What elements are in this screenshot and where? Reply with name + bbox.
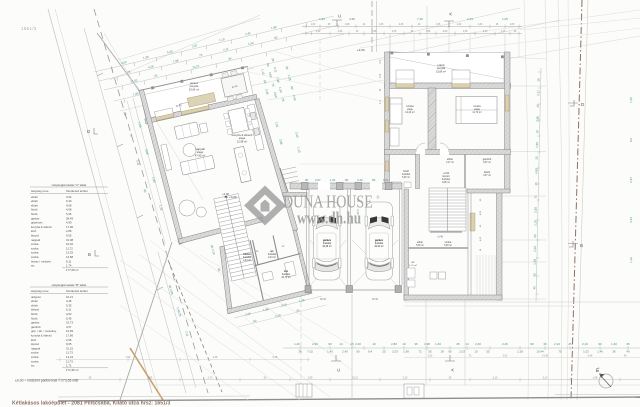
- svg-text:előtér: előtér: [447, 158, 453, 161]
- svg-text:4,48: 4,48: [213, 356, 218, 359]
- svg-text:1,25: 1,25: [436, 24, 441, 26]
- svg-text:kamra: kamra: [243, 253, 251, 256]
- svg-text:1,71: 1,71: [66, 364, 72, 368]
- svg-text:36: 36: [298, 350, 302, 354]
- svg-text:2,10: 2,10: [403, 376, 408, 379]
- svg-text:20,24 m²: 20,24 m²: [374, 245, 383, 248]
- svg-text:®: ®: [376, 195, 380, 201]
- svg-text:2,03: 2,03: [503, 355, 508, 357]
- svg-text:burkolat: burkolat: [442, 178, 451, 181]
- svg-text:7,02: 7,02: [126, 356, 131, 359]
- svg-text:1,46: 1,46: [597, 350, 603, 354]
- svg-text:7,26: 7,26: [417, 17, 423, 21]
- svg-text:4,43: 4,43: [478, 24, 483, 26]
- svg-text:4,43: 4,43: [629, 217, 633, 223]
- svg-text:tároló: tároló: [484, 171, 491, 174]
- svg-text:25: 25: [568, 342, 572, 346]
- svg-text:5,35 m²: 5,35 m²: [416, 244, 424, 247]
- svg-text:3,55: 3,55: [148, 376, 153, 379]
- svg-text:1651/2: 1651/2: [21, 26, 37, 31]
- svg-text:5,45 m²: 5,45 m²: [402, 176, 410, 179]
- svg-text:1,40: 1,40: [435, 342, 441, 346]
- svg-text:9,4: 9,4: [368, 350, 372, 354]
- svg-text:90 90: 90 90: [320, 298, 327, 301]
- svg-text:lépcső: lépcső: [443, 175, 451, 178]
- svg-text:1,40: 1,40: [611, 342, 617, 346]
- svg-text:1,40: 1,40: [327, 350, 333, 354]
- svg-text:2,43: 2,43: [467, 17, 473, 21]
- svg-text:6,48: 6,48: [588, 355, 593, 357]
- svg-text:előtér: előtér: [417, 241, 423, 244]
- svg-text:14: 14: [465, 342, 469, 346]
- svg-text:1,25: 1,25: [379, 24, 384, 26]
- svg-text:+4,50: +4,50: [357, 48, 365, 52]
- svg-text:2,60: 2,60: [533, 207, 537, 213]
- svg-text:1,02: 1,02: [583, 350, 589, 354]
- svg-text:1,05: 1,05: [510, 24, 515, 26]
- svg-text:2,11: 2,11: [536, 90, 540, 96]
- svg-text:1,50: 1,50: [535, 142, 539, 148]
- svg-text:36: 36: [543, 342, 547, 346]
- svg-text:2,60: 2,60: [443, 31, 448, 33]
- svg-text:garázs: garázs: [375, 238, 384, 242]
- svg-text:55: 55: [486, 350, 490, 354]
- svg-text:4,57 m²: 4,57 m²: [483, 161, 491, 164]
- svg-text:5,48 m²: 5,48 m²: [444, 244, 452, 247]
- svg-text:25: 25: [456, 342, 460, 346]
- svg-text:1,45: 1,45: [501, 31, 506, 33]
- svg-text:1,98: 1,98: [345, 24, 350, 26]
- svg-text:25: 25: [382, 350, 386, 354]
- svg-text:90: 90: [305, 178, 309, 182]
- svg-text:14,24 m²: 14,24 m²: [405, 111, 415, 114]
- svg-text:1,23: 1,23: [319, 17, 325, 21]
- svg-text:burkolat: burkolat: [243, 256, 252, 259]
- svg-text:garázs: garázs: [323, 238, 332, 242]
- svg-text:1,10: 1,10: [533, 220, 537, 226]
- svg-text:10: 10: [535, 130, 539, 134]
- svg-text:2,44 m²: 2,44 m²: [243, 259, 251, 262]
- svg-text:3,47 m²: 3,47 m²: [483, 174, 491, 177]
- svg-text:47,90 m²: 47,90 m²: [195, 153, 205, 157]
- svg-text:2,45: 2,45: [399, 24, 404, 26]
- svg-text:25: 25: [536, 104, 540, 108]
- svg-text:1,74: 1,74: [66, 264, 72, 268]
- svg-text:1,71 m²: 1,71 m²: [409, 264, 417, 267]
- svg-text:72: 72: [418, 350, 422, 354]
- svg-text:burkolat: burkolat: [282, 273, 291, 276]
- svg-text:fürdő: fürdő: [403, 170, 409, 173]
- svg-text:www.dh.hu: www.dh.hu: [297, 209, 362, 228]
- svg-text:26: 26: [536, 78, 540, 82]
- svg-text:9,05 m²: 9,05 m²: [442, 181, 450, 184]
- svg-text:1,90: 1,90: [316, 31, 321, 33]
- svg-text:+0,00: +0,00: [229, 195, 237, 199]
- svg-text:3,96: 3,96: [380, 73, 382, 78]
- svg-text:90: 90: [598, 342, 602, 346]
- svg-text:2,40: 2,40: [355, 342, 361, 346]
- svg-text:2,90: 2,90: [312, 342, 318, 346]
- svg-text:45: 45: [532, 286, 536, 290]
- svg-text:4,60: 4,60: [534, 168, 538, 174]
- svg-text:10,44: 10,44: [536, 350, 544, 354]
- svg-text:1,01: 1,01: [330, 178, 336, 182]
- svg-text:15,86 m²: 15,86 m²: [436, 70, 446, 73]
- svg-text:25: 25: [535, 156, 539, 160]
- svg-text:gardrob: gardrob: [483, 158, 492, 161]
- svg-text:10: 10: [372, 342, 376, 346]
- svg-text:6,48: 6,48: [273, 356, 278, 359]
- svg-text:2,40: 2,40: [342, 350, 348, 354]
- svg-text:+1,45: +1,45: [437, 237, 444, 239]
- svg-text:Helyiségkimutatás "A" lakás: Helyiségkimutatás "A" lakás: [52, 183, 87, 187]
- svg-text:1,48: 1,48: [593, 376, 598, 379]
- svg-text:burkolat: burkolat: [375, 242, 384, 245]
- svg-text:2,03: 2,03: [428, 355, 433, 357]
- svg-text:55: 55: [428, 350, 432, 354]
- svg-text:Szerkezeti terület: Szerkezeti terület: [66, 289, 88, 293]
- svg-text:2,03: 2,03: [392, 350, 398, 354]
- svg-text:wc: wc: [31, 264, 35, 268]
- svg-text:14,38: 14,38: [542, 355, 548, 357]
- svg-text:szoba: szoba: [445, 241, 452, 244]
- svg-text:Szerkezeti terület: Szerkezeti terület: [66, 189, 88, 193]
- svg-text:3,30: 3,30: [483, 31, 488, 33]
- svg-text:2,25: 2,25: [533, 246, 537, 252]
- svg-text:1,05: 1,05: [502, 17, 508, 21]
- svg-text:burkolat: burkolat: [323, 242, 332, 245]
- svg-text:171,95 m²: 171,95 m²: [66, 368, 79, 372]
- svg-text:2,43: 2,43: [457, 24, 462, 26]
- svg-text:90 90: 90 90: [372, 298, 379, 301]
- svg-text:1,50: 1,50: [380, 59, 382, 64]
- svg-text:burkolat: burkolat: [268, 253, 277, 256]
- svg-text:2,97: 2,97: [629, 177, 633, 183]
- svg-text:3,96: 3,96: [535, 116, 539, 122]
- svg-text:Helyiség neve: Helyiség neve: [31, 289, 49, 293]
- svg-text:1,01: 1,01: [383, 178, 389, 182]
- svg-text:2,10: 2,10: [554, 342, 560, 346]
- svg-text:49: 49: [626, 350, 630, 354]
- svg-text:20,74 m²: 20,74 m²: [281, 276, 290, 279]
- svg-text:3,10: 3,10: [493, 376, 498, 379]
- svg-text:2,97: 2,97: [315, 178, 321, 182]
- svg-text:14: 14: [339, 342, 343, 346]
- svg-text:90: 90: [328, 342, 332, 346]
- svg-text:10: 10: [474, 350, 478, 354]
- svg-text:75: 75: [558, 350, 562, 354]
- svg-text:Helyiségkimutatás "B" lakás: Helyiségkimutatás "B" lakás: [52, 283, 87, 287]
- svg-text:2,10: 2,10: [582, 342, 588, 346]
- svg-text:4,50: 4,50: [349, 17, 355, 21]
- svg-text:12,98 m²: 12,98 m²: [237, 139, 247, 143]
- svg-text:18: 18: [440, 350, 444, 354]
- svg-text:1,40: 1,40: [294, 342, 300, 346]
- svg-text:2,11: 2,11: [380, 99, 382, 104]
- svg-text:2,18: 2,18: [517, 350, 523, 354]
- svg-text:±0,00 = földszint padlóvonal =: ±0,00 = földszint padlóvonal = 273,65 mB…: [15, 379, 78, 383]
- svg-text:11,72 m²: 11,72 m²: [472, 111, 481, 114]
- svg-text:36: 36: [414, 342, 418, 346]
- svg-text:1,28: 1,28: [463, 31, 468, 33]
- svg-text:1,03: 1,03: [311, 24, 316, 26]
- svg-text:20,46 m²: 20,46 m²: [322, 245, 331, 248]
- svg-text:2,03: 2,03: [459, 350, 465, 354]
- svg-text:Kétlakásos lakóépület - 2081 P: Kétlakásos lakóépület - 2081 Piliscsaba,…: [12, 401, 171, 407]
- svg-text:B: B: [88, 252, 91, 257]
- svg-text:2,40: 2,40: [502, 342, 508, 346]
- svg-text:25,06 m²: 25,06 m²: [189, 87, 199, 91]
- svg-text:90: 90: [448, 350, 452, 354]
- svg-text:2,70: 2,70: [208, 376, 213, 379]
- svg-text:B: B: [580, 243, 583, 248]
- svg-text:90: 90: [345, 178, 349, 182]
- svg-text:A: A: [450, 368, 455, 371]
- svg-text:2,80: 2,80: [391, 342, 397, 346]
- svg-text:10,21: 10,21: [352, 376, 359, 379]
- svg-text:7,02: 7,02: [307, 350, 313, 354]
- svg-text:1,10: 1,10: [629, 257, 633, 263]
- svg-text:+2,90: +2,90: [222, 192, 230, 196]
- svg-text:2,17 m²: 2,17 m²: [446, 161, 454, 164]
- svg-text:2,45: 2,45: [392, 31, 397, 33]
- svg-text:55: 55: [533, 234, 537, 238]
- svg-text:45: 45: [626, 342, 630, 346]
- svg-text:burkolat: burkolat: [402, 173, 411, 176]
- svg-text:75: 75: [534, 195, 538, 199]
- svg-text:1,25: 1,25: [629, 97, 633, 103]
- svg-text:55: 55: [372, 178, 376, 182]
- svg-text:2,44 m²: 2,44 m²: [268, 256, 276, 259]
- svg-text:wc: wc: [31, 364, 35, 368]
- svg-text:6,0: 6,0: [629, 138, 633, 143]
- svg-text:36: 36: [612, 350, 616, 354]
- svg-text:10: 10: [402, 342, 406, 346]
- svg-text:1,98: 1,98: [424, 342, 430, 346]
- svg-text:Helyiség neve: Helyiség neve: [31, 189, 49, 193]
- svg-text:A: A: [448, 12, 453, 15]
- svg-text:90: 90: [530, 342, 534, 346]
- svg-text:2,10: 2,10: [543, 376, 548, 379]
- svg-text:1,98: 1,98: [372, 31, 377, 33]
- svg-text:2,46: 2,46: [338, 31, 343, 33]
- svg-text:1,99: 1,99: [308, 376, 313, 379]
- svg-text:90: 90: [356, 350, 360, 354]
- svg-text:2,40: 2,40: [475, 342, 481, 346]
- svg-text:177,08 m²: 177,08 m²: [66, 268, 79, 272]
- svg-text:1,98: 1,98: [403, 350, 409, 354]
- svg-text:2,40: 2,40: [357, 178, 363, 182]
- svg-text:1,66: 1,66: [426, 31, 431, 33]
